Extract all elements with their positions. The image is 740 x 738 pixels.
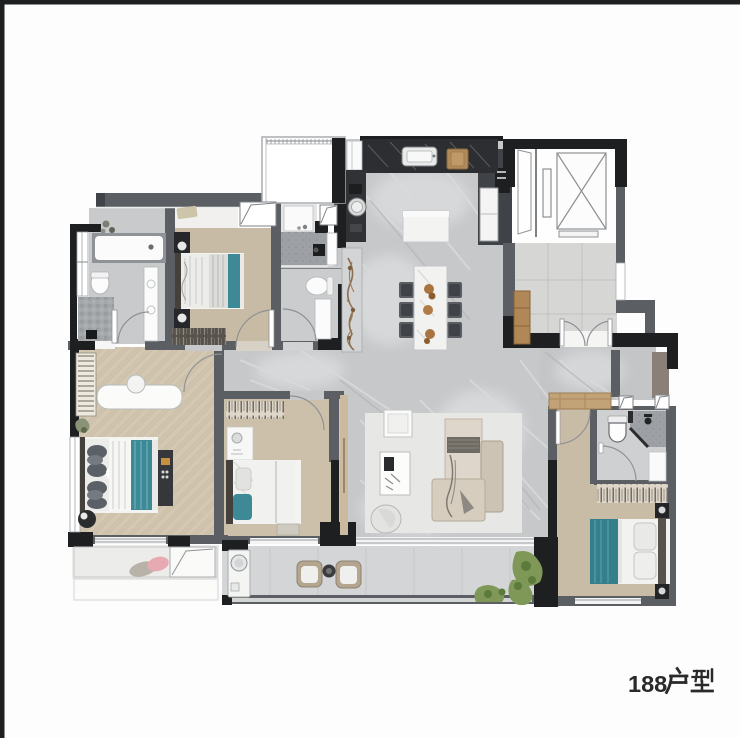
svg-text:188: 188 (628, 671, 667, 697)
